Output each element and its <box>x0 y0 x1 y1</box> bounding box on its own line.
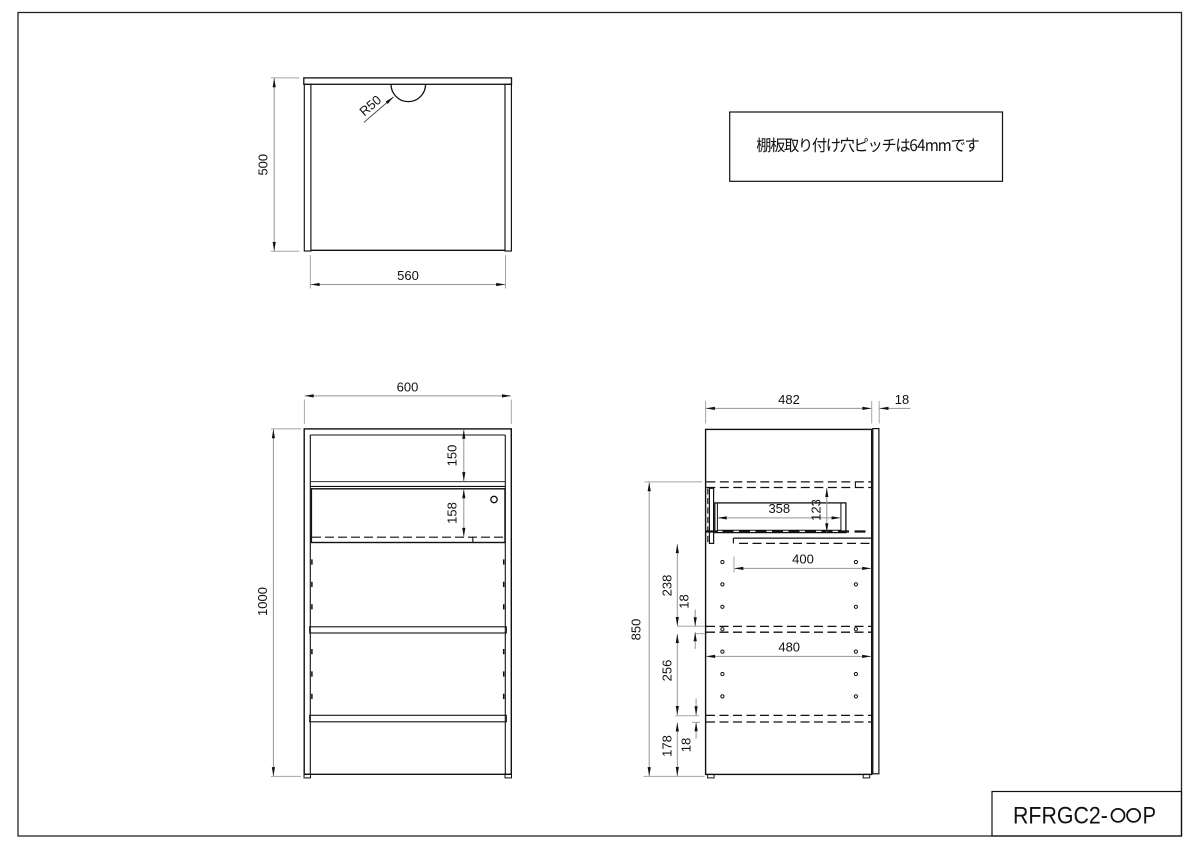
svg-text:850: 850 <box>629 619 644 641</box>
svg-text:18: 18 <box>678 738 693 752</box>
svg-text:500: 500 <box>256 154 271 176</box>
svg-text:P: P <box>1143 803 1156 830</box>
svg-text:560: 560 <box>397 268 419 283</box>
svg-text:482: 482 <box>778 392 800 407</box>
svg-text:358: 358 <box>768 501 790 516</box>
svg-text:18: 18 <box>677 594 692 608</box>
svg-text:158: 158 <box>445 502 460 524</box>
svg-text:123: 123 <box>808 499 823 521</box>
svg-text:18: 18 <box>895 392 909 407</box>
svg-text:RFRGC2-: RFRGC2- <box>1013 803 1108 830</box>
svg-text:256: 256 <box>660 660 675 682</box>
svg-text:1000: 1000 <box>255 587 270 616</box>
svg-text:600: 600 <box>397 380 419 395</box>
svg-text:480: 480 <box>778 639 800 654</box>
svg-text:238: 238 <box>660 575 675 597</box>
svg-text:150: 150 <box>445 445 460 467</box>
svg-text:178: 178 <box>660 735 675 757</box>
svg-text:400: 400 <box>792 552 814 567</box>
